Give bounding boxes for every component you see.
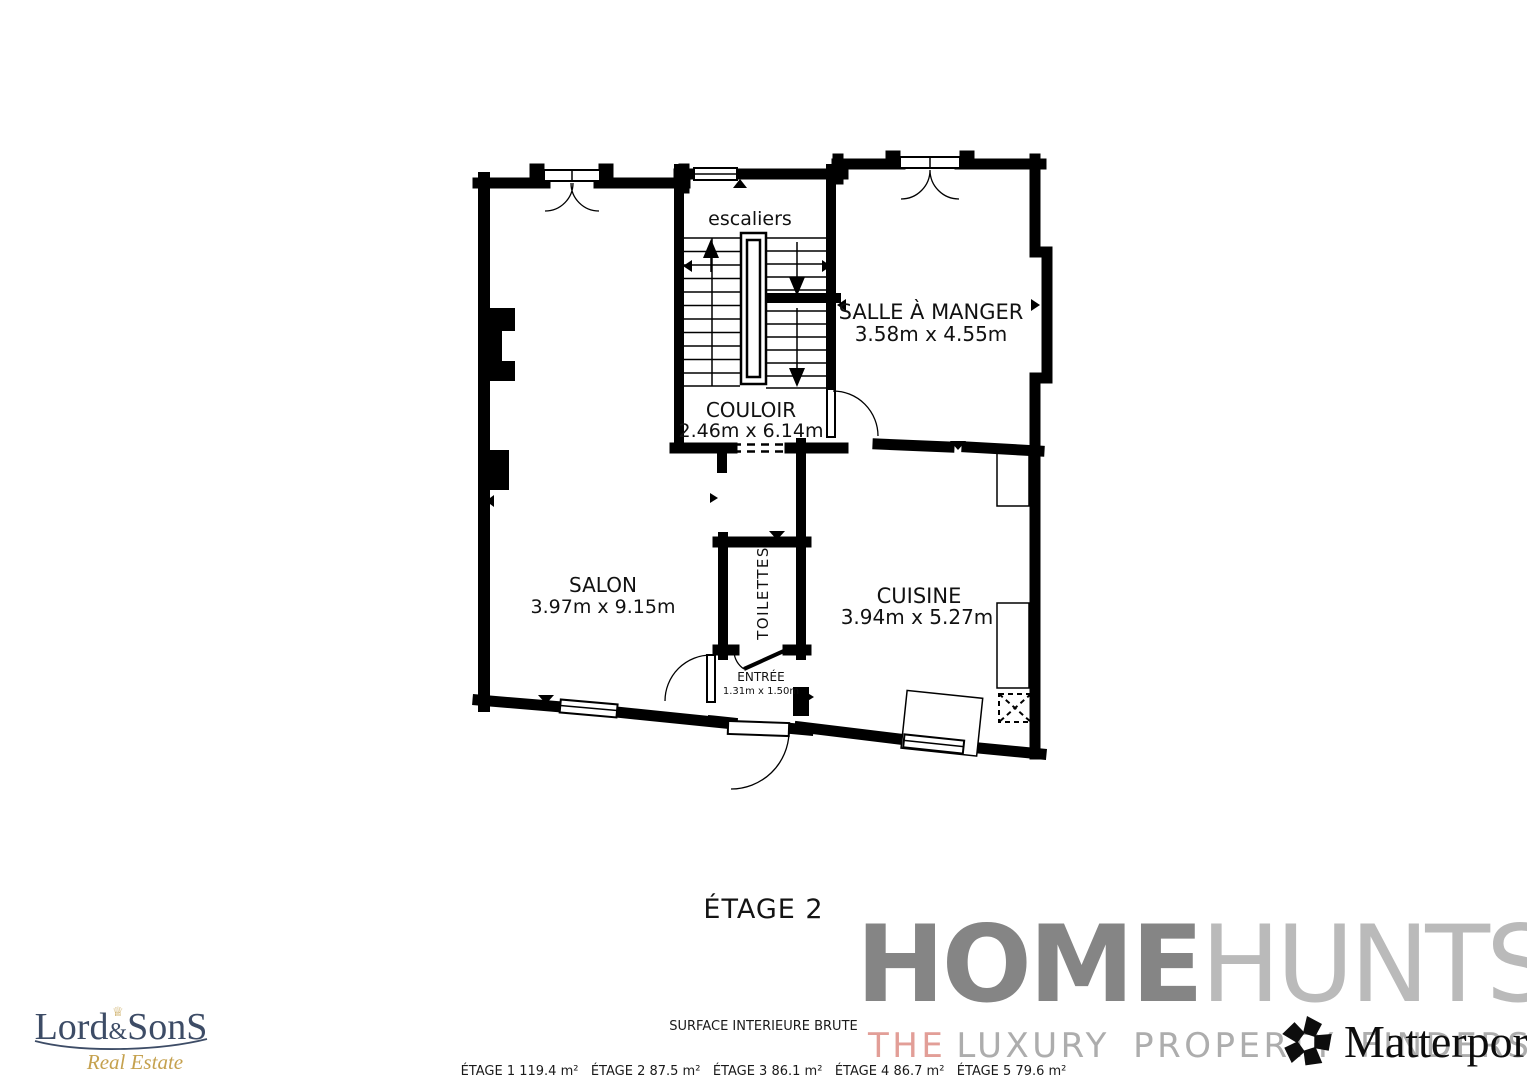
stair-down-arrow-2 xyxy=(789,368,805,387)
matterport-pinwheel-icon xyxy=(1278,1012,1336,1070)
dims-entree: 1.31m x 1.50m xyxy=(723,686,799,697)
bay-window-cuisine xyxy=(901,690,983,756)
label-couloir: COULOIR xyxy=(706,398,796,422)
dims-salon: 3.97m x 9.15m xyxy=(531,596,676,618)
label-salle-a-manger: SALLE À MANGER xyxy=(839,299,1024,324)
wall-pier-block xyxy=(484,450,509,490)
hob-symbol xyxy=(999,694,1031,722)
door-salon-entree xyxy=(665,655,715,702)
window-salon-bottom xyxy=(560,700,618,718)
door-entree-exterior xyxy=(728,721,789,789)
dashed-opening xyxy=(733,445,789,452)
door-toilettes xyxy=(734,650,786,669)
dims-couloir: 2.46m x 6.14m xyxy=(679,420,824,442)
matterport-logo: Matterport xyxy=(1278,1012,1527,1070)
stair-up-arrow xyxy=(703,239,719,258)
door-couloir-salle xyxy=(827,389,878,437)
label-entree: ENTRÉE xyxy=(737,669,784,684)
window-stair-top xyxy=(694,168,737,180)
page: escaliers SALLE À MANGER 3.58m x 4.55m C… xyxy=(0,0,1527,1080)
dims-cuisine: 3.94m x 5.27m xyxy=(841,605,994,629)
label-escaliers: escaliers xyxy=(708,208,792,230)
dims-salle-a-manger: 3.58m x 4.55m xyxy=(855,322,1008,346)
matterport-name: Matterport xyxy=(1344,1015,1527,1068)
kitchen-fixtures xyxy=(997,452,1031,722)
stair-railing-inner xyxy=(747,240,760,377)
counter-lower xyxy=(997,603,1029,688)
door-salle-a-manger-exterior xyxy=(886,151,974,199)
windows xyxy=(560,168,983,756)
floor-title: ÉTAGE 2 xyxy=(0,894,1527,925)
counter-upper xyxy=(997,452,1029,506)
label-salon: SALON xyxy=(569,573,637,597)
label-toilettes: TOILETTES xyxy=(754,546,772,641)
fireplace-inset xyxy=(502,331,517,361)
